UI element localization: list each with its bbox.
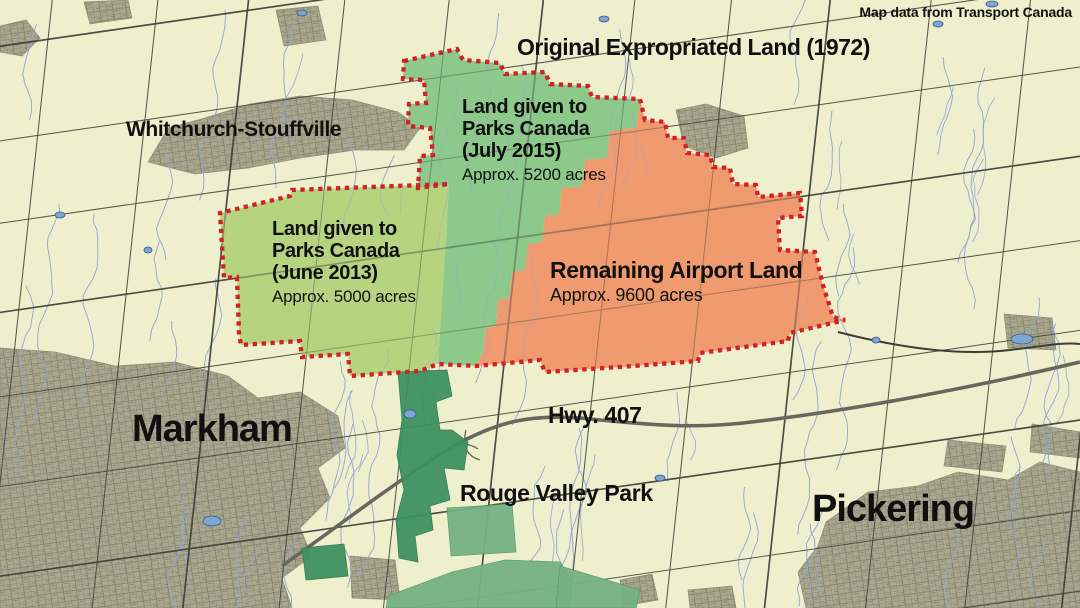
pond [599,16,609,22]
pond [1011,334,1033,344]
park-patch [447,504,516,556]
pond [144,247,152,253]
urban-blob [688,586,736,608]
park-patch-dark [302,544,348,580]
urban-blob [944,440,1006,472]
pond [203,516,221,526]
pond [55,212,65,218]
base-map [0,0,1080,608]
pond [933,21,943,27]
pond [986,1,998,7]
urban-blob [350,556,400,600]
map-canvas: Map data from Transport Canada Original … [0,0,1080,608]
pond [404,410,416,418]
pond [655,475,665,481]
pond [297,10,307,16]
pond [872,337,880,343]
